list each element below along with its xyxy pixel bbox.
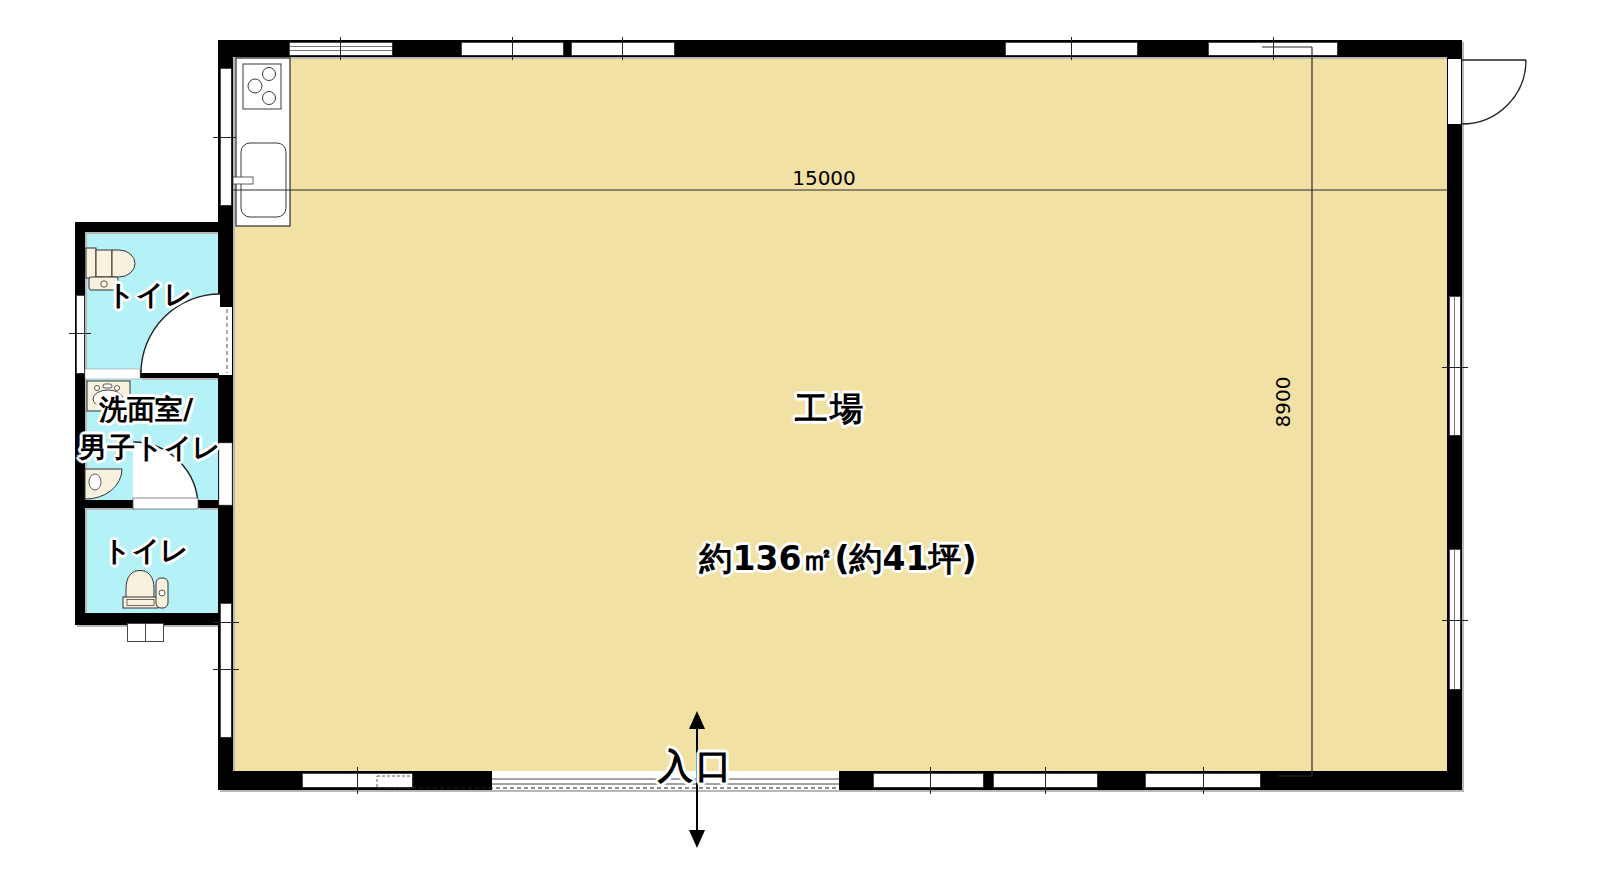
area-label: 約136㎡(約41坪)	[700, 542, 977, 575]
room-label-toilet-north: トイレ	[107, 281, 193, 309]
stove-burner	[248, 79, 262, 93]
door-arc-exterior	[1462, 60, 1526, 124]
kitchen-faucet	[233, 177, 253, 184]
annex-wall-left	[75, 222, 85, 625]
room-label-factory: 工場	[795, 392, 865, 425]
door-opening-toilet-north	[219, 307, 232, 375]
annex-wall-top	[75, 222, 233, 232]
door-leaf-washroom	[133, 498, 198, 509]
kitchen-unit	[233, 58, 290, 226]
window-left-2	[220, 603, 231, 737]
room-label-toilet-south: トイレ	[103, 537, 189, 565]
window-bottom-2	[873, 773, 983, 787]
floorplan-canvas: トイレ 洗面室/ 男子トイレ トイレ 工場 約136㎡(約41坪) 入口 150…	[0, 0, 1599, 891]
entrance-label: 入口	[658, 749, 734, 784]
room-label-washroom-line2: 男子トイレ	[79, 434, 221, 462]
dimension-width-label: 15000	[792, 168, 856, 188]
annex-divider-2a	[85, 500, 133, 508]
floorplan-drawing	[0, 0, 1599, 891]
stove-burner	[263, 68, 276, 81]
stove-burner	[263, 92, 276, 105]
arrow-head-down	[689, 830, 705, 848]
door-opening-exterior	[1448, 59, 1461, 124]
dimension-depth-label: 8900	[1273, 377, 1293, 428]
room-label-washroom-line1: 洗面室/	[99, 396, 193, 424]
window-annex-left	[76, 295, 84, 373]
door-opening-divider-1	[85, 369, 140, 379]
